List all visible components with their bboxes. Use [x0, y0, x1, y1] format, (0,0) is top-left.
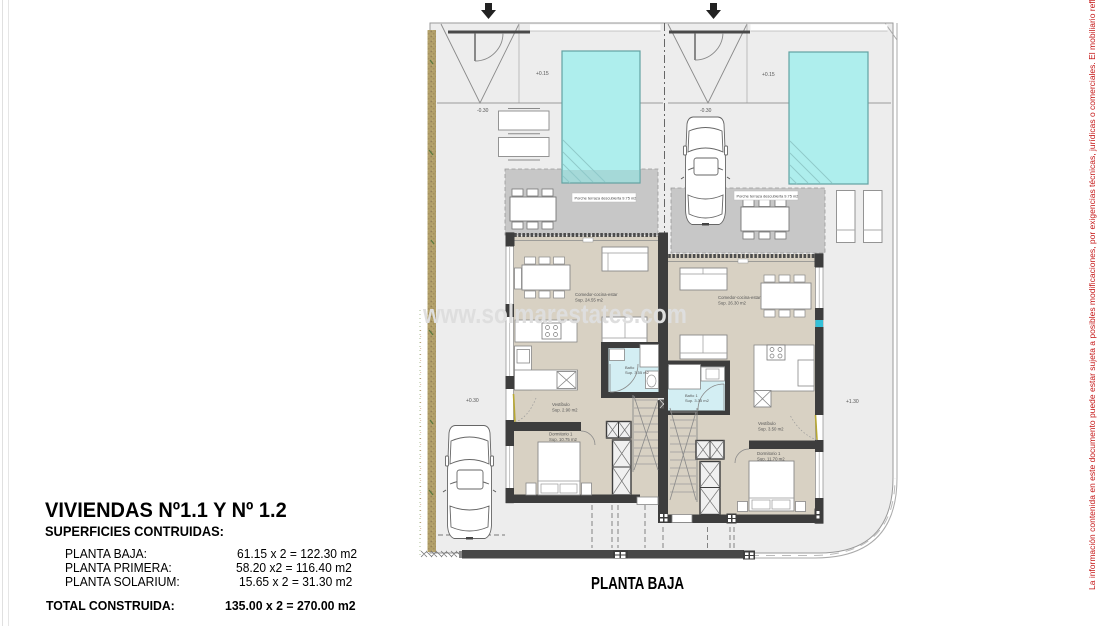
- svg-text:+0.30: +0.30: [466, 398, 479, 404]
- svg-text:Vestíbulo: Vestíbulo: [552, 402, 570, 407]
- svg-text:Sup. 26.30 m2: Sup. 26.30 m2: [718, 301, 747, 306]
- svg-text:-0.30: -0.30: [700, 108, 712, 114]
- svg-text:Sup. 3.55 m2: Sup. 3.55 m2: [625, 370, 650, 375]
- svg-text:Sup. 3.50 m2: Sup. 3.50 m2: [758, 427, 784, 432]
- svg-text:Vestíbulo: Vestíbulo: [758, 421, 776, 426]
- svg-text:+1.30: +1.30: [846, 399, 859, 405]
- svg-text:Dormitorio 1: Dormitorio 1: [549, 432, 573, 437]
- svg-text:Porche terraza descubierta 9.7: Porche terraza descubierta 9.75 m2: [737, 193, 799, 198]
- svg-text:+0.15: +0.15: [762, 72, 775, 78]
- svg-text:Sup. 3.35 m2: Sup. 3.35 m2: [685, 398, 710, 403]
- svg-text:Comedor-cocina-estar: Comedor-cocina-estar: [718, 295, 761, 300]
- svg-text:Comedor-cocina-estar: Comedor-cocina-estar: [575, 292, 618, 297]
- svg-text:Dormitorio 1: Dormitorio 1: [757, 451, 781, 456]
- svg-text:Sup. 10.75 m2: Sup. 10.75 m2: [549, 437, 578, 442]
- svg-text:Sup. 2.90 m2: Sup. 2.90 m2: [552, 408, 578, 413]
- svg-text:+0.15: +0.15: [536, 71, 549, 77]
- svg-text:Porche terraza descubierta 9.7: Porche terraza descubierta 9.75 m2: [575, 195, 637, 200]
- svg-text:-0.30: -0.30: [477, 108, 489, 114]
